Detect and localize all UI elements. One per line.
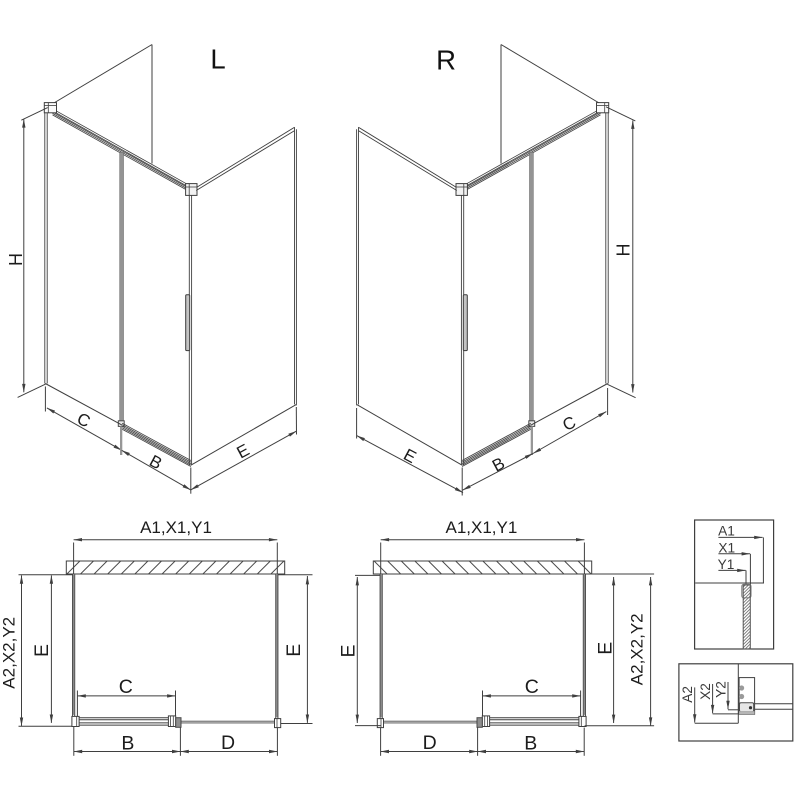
svg-text:A2,X2,Y2: A2,X2,Y2 xyxy=(0,617,19,689)
svg-text:H: H xyxy=(614,244,634,257)
svg-text:E: E xyxy=(31,644,53,657)
svg-text:E: E xyxy=(595,642,617,655)
svg-text:B: B xyxy=(524,732,537,754)
svg-text:A1,X1,Y1: A1,X1,Y1 xyxy=(140,518,212,537)
svg-text:D: D xyxy=(221,732,235,754)
svg-text:X2: X2 xyxy=(698,683,713,700)
svg-text:H: H xyxy=(6,253,26,266)
svg-text:L: L xyxy=(210,44,225,75)
svg-text:B: B xyxy=(121,732,134,754)
svg-text:Y2: Y2 xyxy=(714,681,729,698)
svg-text:A1: A1 xyxy=(718,524,735,539)
svg-text:A1,X1,Y1: A1,X1,Y1 xyxy=(445,518,517,537)
svg-text:R: R xyxy=(436,45,456,76)
svg-text:C: C xyxy=(119,676,133,698)
svg-text:E: E xyxy=(338,644,360,657)
svg-text:D: D xyxy=(423,732,437,754)
svg-text:A2: A2 xyxy=(680,686,695,703)
svg-text:A2,X2,Y2: A2,X2,Y2 xyxy=(628,613,647,685)
svg-text:E: E xyxy=(283,644,305,657)
svg-text:C: C xyxy=(525,676,539,698)
